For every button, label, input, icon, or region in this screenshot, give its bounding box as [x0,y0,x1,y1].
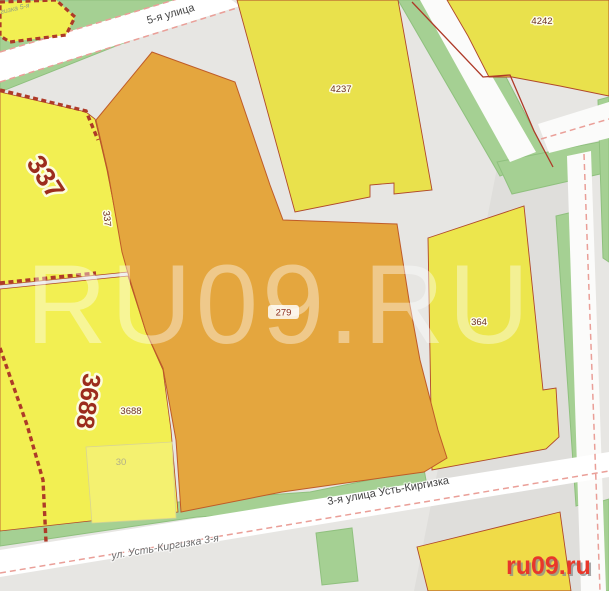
building-30-footprint[interactable] [86,442,176,523]
cadastral-map[interactable]: RU09.RU 337 337 3688 3688 4237 4242 364 … [0,0,609,591]
map-canvas: RU09.RU 337 337 3688 3688 4237 4242 364 … [0,0,609,591]
parcel-label-4242: 4242 [531,16,552,27]
parcel-label-4237: 4237 [330,84,351,95]
watermark: RU09.RU [26,242,533,367]
building-label-30: 30 [116,457,127,468]
ru09-logo[interactable]: ru09.ru [506,552,591,580]
vegetation-bottom-patch [316,528,358,585]
parcel-label-364: 364 [471,317,487,328]
parcel-label-3688-small: 3688 [120,406,141,417]
parcel-label-279: 279 [276,308,292,319]
parcel-label-337-small: 337 [100,210,113,227]
